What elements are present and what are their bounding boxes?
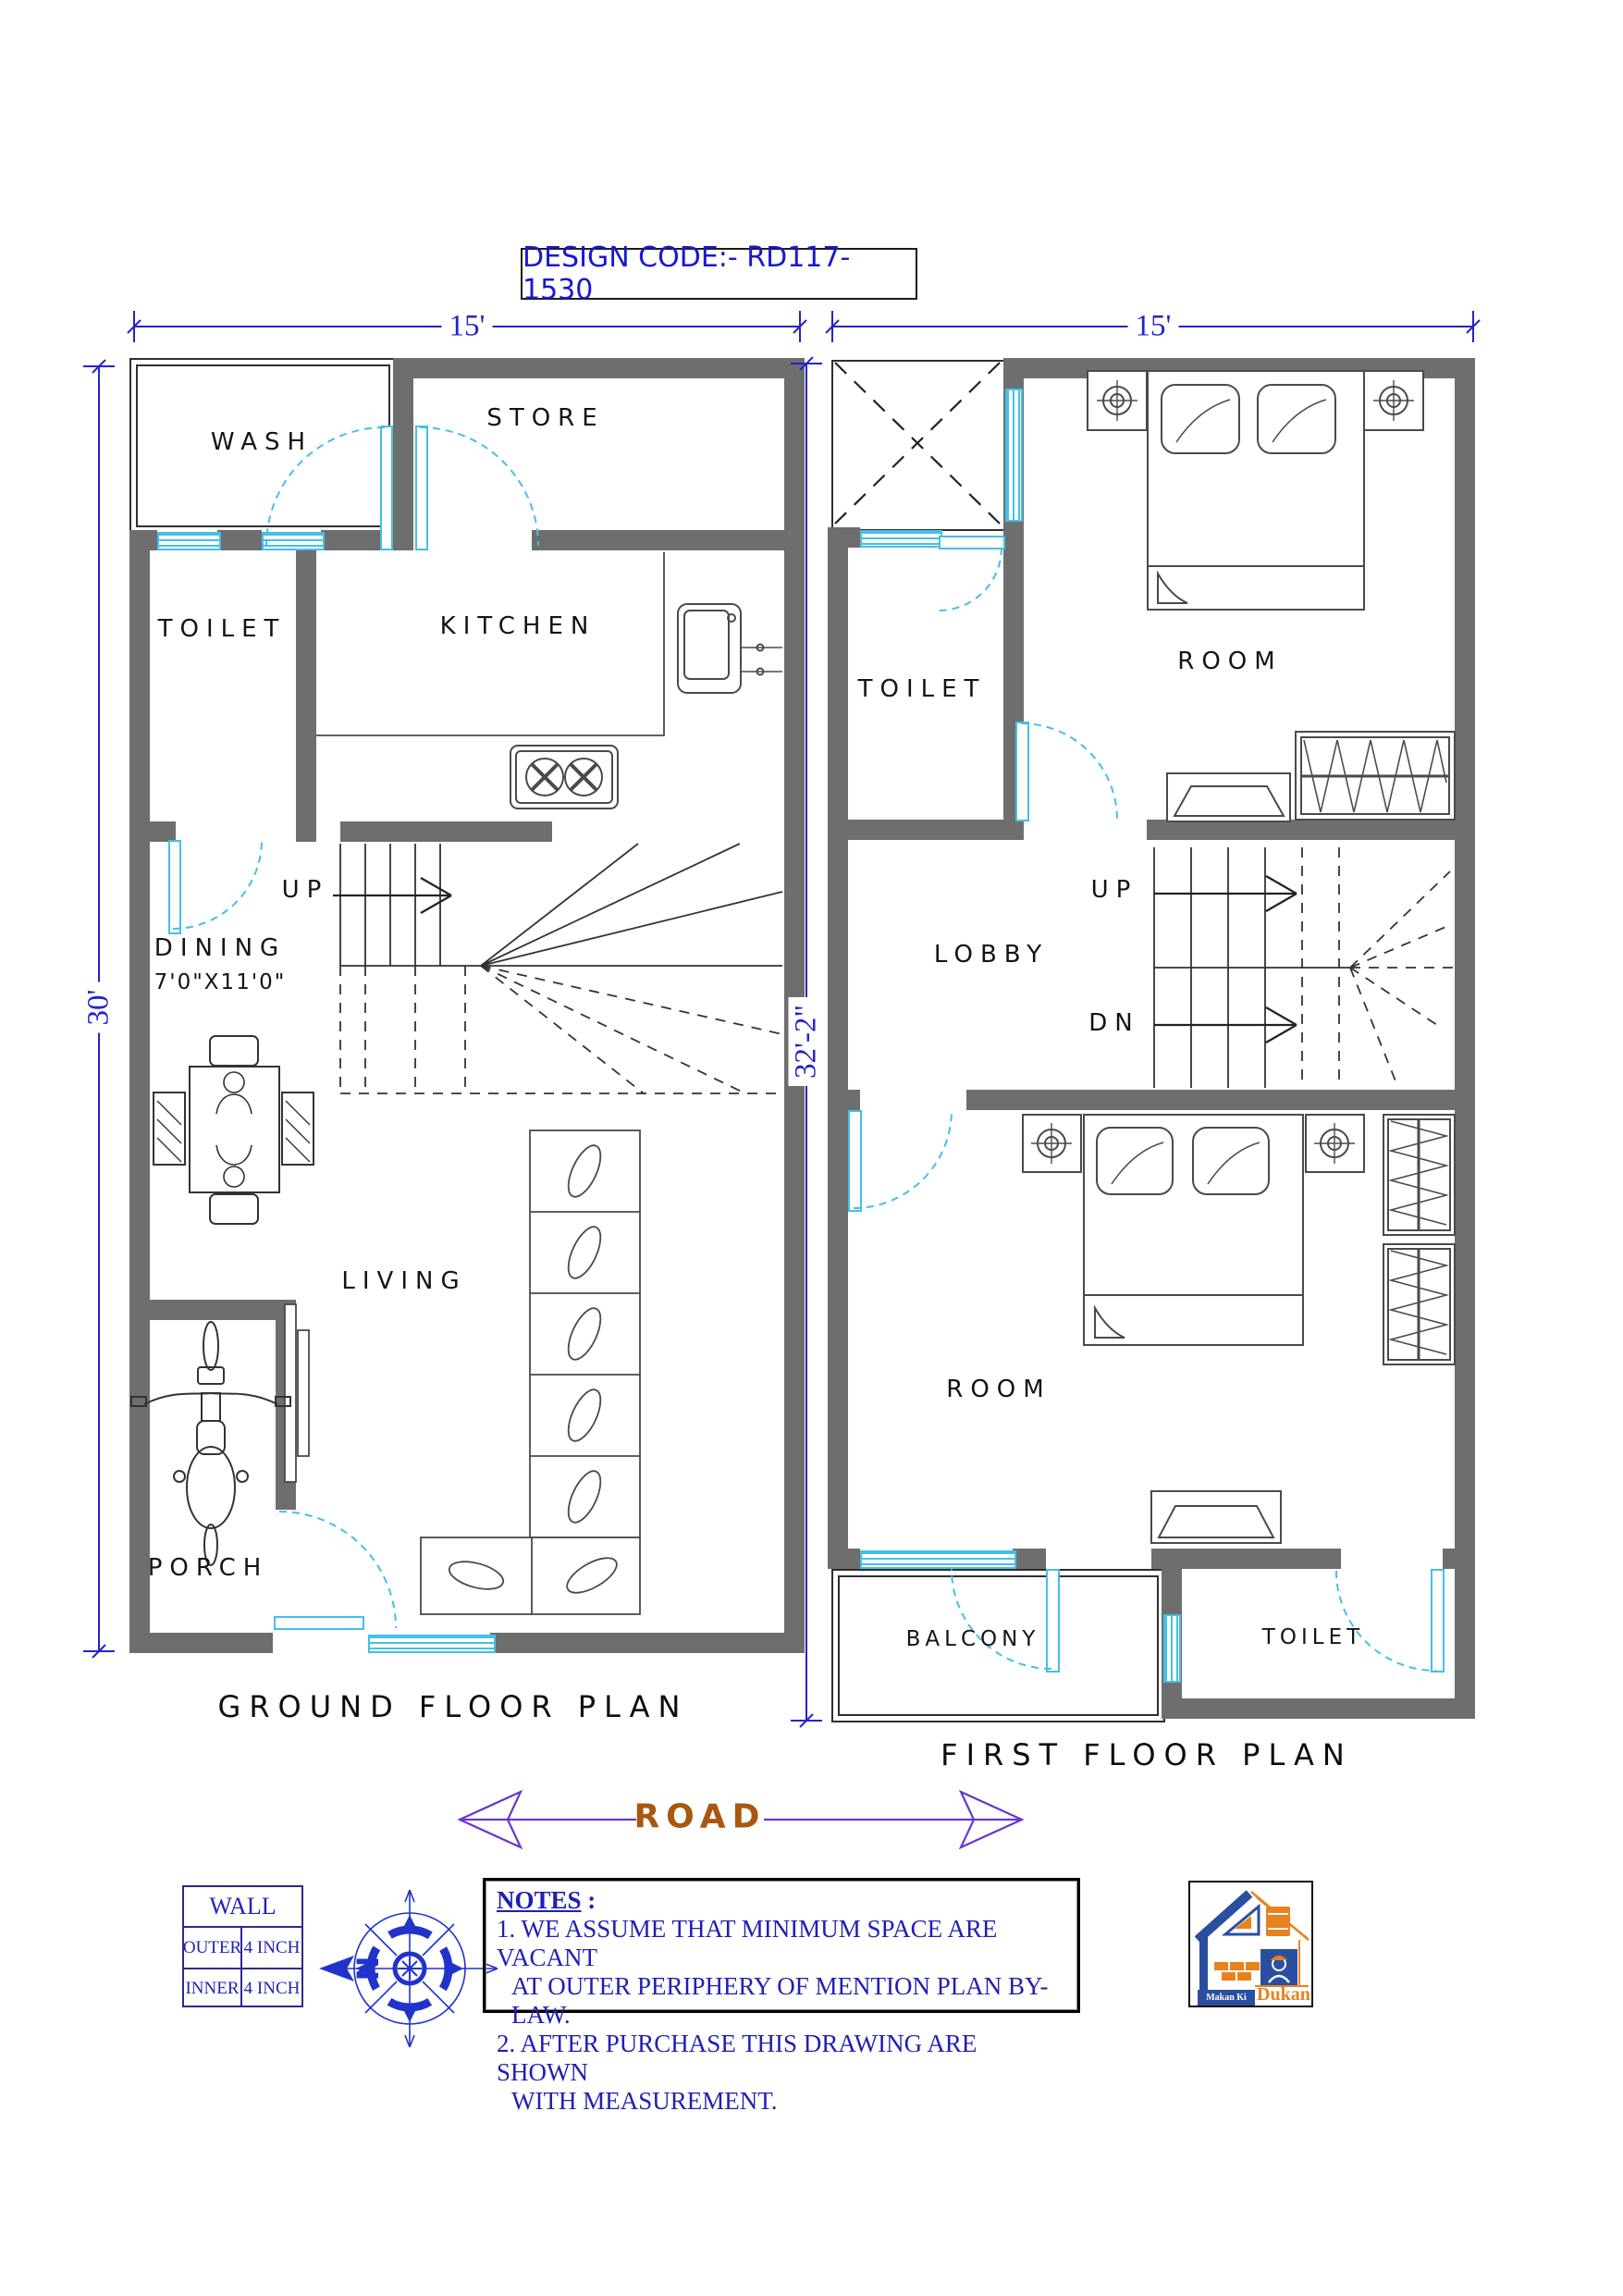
brand-name-secondary: Dukan	[1257, 1984, 1310, 2006]
wall	[296, 550, 316, 842]
room-label-store: STORE	[486, 404, 604, 432]
window	[1005, 389, 1023, 522]
notes-box: NOTES : 1. WE ASSUME THAT MINIMUM SPACE …	[483, 1878, 1080, 2013]
wall	[828, 527, 848, 1569]
notes-line: 2. AFTER PURCHASE THIS DRAWING ARE SHOWN	[497, 2030, 1066, 2087]
notes-line: AT OUTER PERIPHERY OF MENTION PLAN BY-LA…	[497, 1972, 1066, 2030]
wall	[1151, 1549, 1341, 1569]
door-leaf	[168, 840, 181, 934]
wardrobe-icon	[1296, 732, 1455, 820]
wall	[129, 821, 176, 842]
notes-line: WITH MEASUREMENT.	[497, 2087, 1066, 2116]
sink-icon	[678, 604, 782, 693]
wall	[129, 530, 157, 550]
stairs-label-up-gf: UP	[282, 876, 329, 904]
room-label-toilet-ff-bottom: TOILET	[1262, 1625, 1364, 1649]
wall-table-cell: 4 INCH	[242, 1969, 301, 2007]
wall	[340, 821, 552, 842]
road-arrow-right	[764, 1792, 1022, 1847]
compass-north-label: N	[350, 1957, 386, 1981]
gf-stairs	[340, 844, 782, 1093]
wall	[129, 1633, 273, 1653]
wall	[1455, 358, 1475, 1569]
dining-table	[154, 1036, 314, 1224]
notes-heading-colon: :	[582, 1886, 596, 1914]
wall	[1147, 820, 1475, 840]
door-leaf	[380, 426, 393, 550]
gf-caption: GROUND FLOOR PLAN	[218, 1689, 689, 1724]
room-label-lobby: LOBBY	[934, 941, 1049, 969]
stove-icon	[510, 746, 618, 809]
wall	[1013, 1549, 1046, 1569]
ff-dn-arrow	[1154, 1007, 1297, 1043]
ff-caption: FIRST FLOOR PLAN	[941, 1737, 1353, 1772]
window	[262, 532, 325, 550]
gf-up-arrow	[333, 878, 451, 913]
door-leaf	[415, 426, 428, 550]
stairs-label-dn-ff: DN	[1088, 1009, 1139, 1037]
dim-label-ff-width: 15'	[1128, 309, 1179, 345]
wall	[1443, 1549, 1475, 1569]
window	[1163, 1614, 1181, 1683]
wall	[532, 530, 805, 550]
wall-table-cell: 4 INCH	[242, 1928, 301, 1968]
wall	[393, 358, 805, 378]
wall	[393, 358, 413, 550]
wall	[828, 1549, 860, 1569]
wall	[276, 1320, 296, 1510]
wall	[828, 1090, 860, 1110]
window	[368, 1635, 496, 1653]
dresser-icon	[1167, 773, 1290, 821]
ff-up-arrow	[1154, 876, 1297, 911]
road-arrow-left	[460, 1792, 636, 1847]
wall-spec-table: WALL OUTER 4 INCH INNER 4 INCH	[182, 1885, 303, 2007]
wall	[129, 530, 150, 1653]
room-label-kitchen: KITCHEN	[440, 612, 596, 640]
bed-icon	[1023, 1115, 1364, 1345]
window	[157, 532, 221, 550]
room-label-toilet-ff-top: TOILET	[858, 675, 987, 703]
design-code-text: DESIGN CODE:- RD117-1530	[523, 241, 916, 306]
room-label-dining: DINING	[154, 934, 286, 962]
wall-table-cell: OUTER	[184, 1928, 242, 1968]
wall	[217, 530, 262, 550]
room-label-room-top: ROOM	[1177, 648, 1282, 675]
wall	[828, 820, 1024, 840]
road-label: ROAD	[633, 1798, 766, 1836]
brand-logo: Makan Ki Dukan	[1188, 1881, 1313, 2007]
bed-icon	[1088, 371, 1423, 610]
compass-icon: N	[319, 1890, 498, 2047]
open-to-sky-box	[831, 360, 1007, 531]
notes-line: 1. WE ASSUME THAT MINIMUM SPACE ARE VACA…	[497, 1915, 1066, 1972]
door-leaf	[848, 1110, 862, 1212]
floor-plan-sheet: DESIGN CODE:- RD117-1530	[0, 0, 1623, 2296]
window	[860, 530, 942, 548]
table-row: INNER 4 INCH	[184, 1968, 301, 2007]
door-leaf	[1431, 1569, 1445, 1673]
wall	[966, 1090, 1475, 1110]
room-label-toilet-gf: TOILET	[158, 615, 287, 643]
kitchen-counter	[316, 552, 664, 735]
dresser-icon	[1151, 1491, 1281, 1543]
wardrobe-icon	[1383, 1115, 1455, 1364]
room-label-wash: WASH	[211, 428, 313, 456]
wall	[490, 1633, 805, 1653]
design-code-box: DESIGN CODE:- RD117-1530	[521, 248, 917, 300]
sofa-icon	[421, 1130, 640, 1614]
wall-table-cell: INNER	[184, 1969, 242, 2007]
wall	[1162, 1698, 1475, 1719]
door-leaf	[939, 536, 1005, 549]
wall-table-header: WALL	[184, 1887, 301, 1928]
stairs-label-up-ff: UP	[1091, 876, 1138, 904]
room-label-room-bottom: ROOM	[946, 1376, 1051, 1403]
room-label-living: LIVING	[341, 1267, 466, 1295]
room-label-balcony: BALCONY	[906, 1627, 1040, 1651]
dim-label-gf-depth: 30'	[81, 982, 117, 1033]
motorcycle-icon	[131, 1322, 290, 1565]
dim-label-gf-width: 15'	[442, 309, 493, 345]
door-leaf	[1015, 722, 1029, 821]
room-label-dining-size: 7'0"X11'0"	[154, 970, 287, 994]
window	[860, 1550, 1016, 1569]
notes-heading: NOTES	[497, 1886, 582, 1914]
dim-label-ff-depth: 32'-2"	[789, 997, 825, 1086]
room-label-porch: PORCH	[148, 1554, 269, 1582]
ff-stairs	[1154, 847, 1453, 1088]
wall	[828, 527, 860, 548]
wall	[1003, 358, 1475, 378]
door-leaf	[1046, 1569, 1060, 1673]
wall	[1455, 1569, 1475, 1719]
brand-name-primary: Makan Ki	[1198, 1990, 1255, 2006]
wall	[129, 1300, 296, 1320]
wall	[321, 530, 382, 550]
door-leaf	[274, 1616, 364, 1630]
table-row: OUTER 4 INCH	[184, 1928, 301, 1968]
